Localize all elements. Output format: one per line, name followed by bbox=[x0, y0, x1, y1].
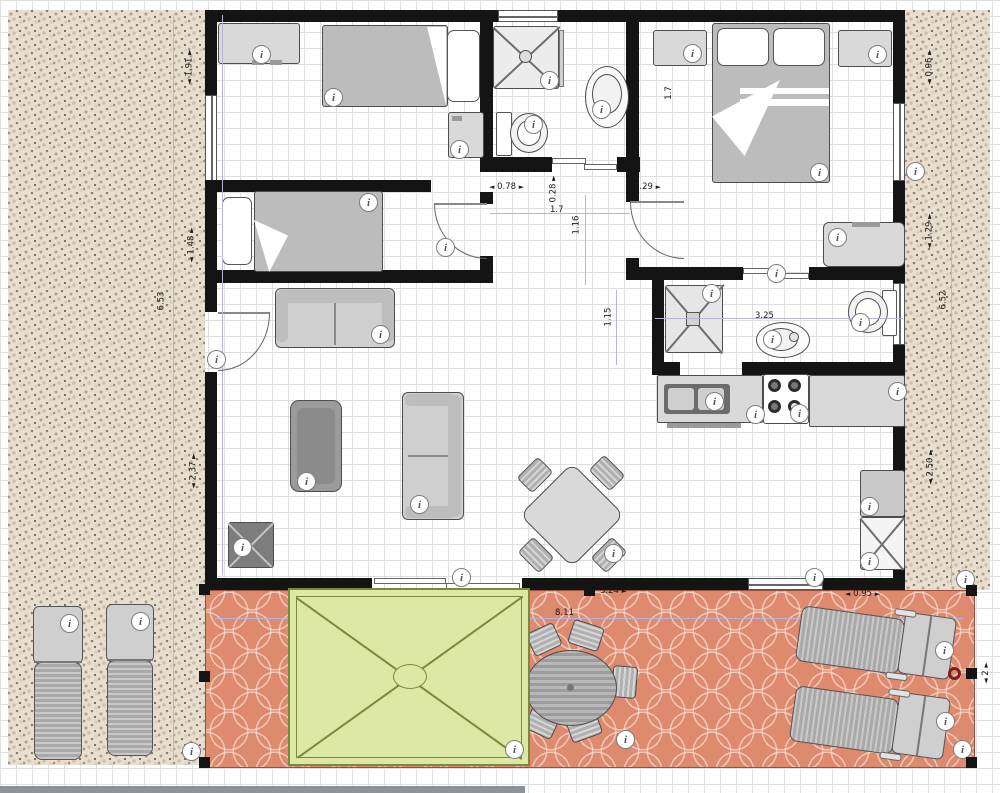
dimension-hall-door-width: ◄ 0.78 ► bbox=[489, 182, 524, 192]
sun-lounger[interactable] bbox=[30, 606, 86, 758]
door-arc[interactable] bbox=[218, 313, 270, 371]
dimension-hall-width: 1.7 bbox=[550, 205, 564, 215]
info-icon[interactable]: i bbox=[851, 313, 870, 332]
selection-handle[interactable] bbox=[584, 585, 595, 596]
selection-handle[interactable] bbox=[966, 585, 977, 596]
info-icon[interactable]: i bbox=[505, 740, 524, 759]
window[interactable] bbox=[498, 10, 558, 22]
sink-basin bbox=[668, 388, 694, 410]
pillow bbox=[773, 28, 825, 66]
guide-line bbox=[616, 290, 617, 365]
selection-handle[interactable] bbox=[199, 671, 210, 682]
info-icon[interactable]: i bbox=[524, 115, 543, 134]
dimension-left-top: ◄ 1.91 ► bbox=[185, 49, 195, 84]
dimension-hall-nook: 0.28 ► bbox=[549, 175, 559, 202]
window[interactable] bbox=[205, 95, 217, 187]
sofa-back bbox=[448, 395, 461, 517]
dimension-right-top: ◄ 0.96 ► bbox=[925, 49, 935, 84]
wall-segment bbox=[652, 362, 680, 375]
dimension-patio-width: 8.11 bbox=[555, 608, 574, 618]
desk-detail bbox=[270, 60, 282, 65]
info-icon[interactable]: i bbox=[233, 538, 252, 557]
info-icon[interactable]: i bbox=[324, 88, 343, 107]
info-icon[interactable]: i bbox=[767, 264, 786, 283]
info-icon[interactable]: i bbox=[702, 284, 721, 303]
info-icon[interactable]: i bbox=[592, 100, 611, 119]
gazebo[interactable] bbox=[288, 588, 530, 766]
sliding-door[interactable] bbox=[552, 157, 617, 172]
info-icon[interactable]: i bbox=[207, 350, 226, 369]
info-icon[interactable]: i bbox=[868, 45, 887, 64]
info-icon[interactable]: i bbox=[683, 44, 702, 63]
info-icon[interactable]: i bbox=[410, 495, 429, 514]
sofa-seam bbox=[408, 455, 448, 457]
info-icon[interactable]: i bbox=[763, 330, 782, 349]
wall-segment bbox=[205, 10, 217, 95]
info-icon[interactable]: i bbox=[131, 612, 150, 631]
wall-segment bbox=[652, 280, 664, 375]
selection-handle[interactable] bbox=[966, 757, 977, 768]
washer-detail bbox=[452, 116, 462, 121]
info-icon[interactable]: i bbox=[705, 392, 724, 411]
counter-edge bbox=[667, 423, 741, 428]
info-icon[interactable]: i bbox=[888, 382, 907, 401]
info-icon[interactable]: i bbox=[371, 325, 390, 344]
bottom-texture-strip bbox=[0, 786, 525, 793]
door-arc[interactable] bbox=[630, 202, 684, 259]
info-icon[interactable]: i bbox=[297, 472, 316, 491]
dimension-patio-right: ◄ 0.95 ► bbox=[845, 589, 880, 599]
info-icon[interactable]: i bbox=[452, 568, 471, 587]
dimension-right-lower: ◄ 2.50 ► bbox=[926, 449, 936, 484]
wall-segment bbox=[809, 267, 905, 280]
dresser-detail bbox=[852, 222, 880, 227]
info-icon[interactable]: i bbox=[436, 238, 455, 257]
info-icon[interactable]: i bbox=[936, 712, 955, 731]
shower-drain bbox=[519, 50, 532, 63]
guide-line bbox=[222, 15, 223, 575]
rotation-handle[interactable] bbox=[948, 667, 961, 680]
sofa-arm bbox=[405, 394, 455, 406]
guide-line bbox=[585, 195, 586, 285]
window[interactable] bbox=[893, 103, 905, 181]
pillow bbox=[717, 28, 769, 66]
sink-faucet bbox=[789, 332, 799, 342]
floor-plan-canvas: i i i i i i i i i i i i i i i i i i i i … bbox=[0, 0, 1000, 793]
dimension-bath2-width: 3.25 bbox=[755, 311, 774, 321]
bed-sheet-stripe bbox=[740, 88, 829, 94]
sun-lounger[interactable] bbox=[103, 604, 157, 754]
dimension-patio-height: ◄ 2 ► bbox=[981, 662, 991, 684]
shower-door bbox=[559, 30, 564, 87]
info-icon[interactable]: i bbox=[450, 140, 469, 159]
info-icon[interactable]: i bbox=[604, 544, 623, 563]
dimension-left-lower: ◄ 2.37 ► bbox=[189, 453, 199, 488]
info-icon[interactable]: i bbox=[828, 228, 847, 247]
dimension-hall-depth: 1.16 bbox=[571, 216, 581, 235]
selection-handle[interactable] bbox=[199, 757, 210, 768]
dimension-bath2-entry: 1.15 bbox=[603, 308, 613, 327]
guide-line bbox=[173, 15, 174, 760]
wall-segment bbox=[522, 578, 748, 590]
selection-handle[interactable] bbox=[199, 584, 210, 595]
info-icon[interactable]: i bbox=[540, 71, 559, 90]
dimension-left-wall: 6.53 bbox=[156, 292, 166, 311]
info-icon[interactable]: i bbox=[60, 614, 79, 633]
wall-segment bbox=[205, 187, 217, 312]
wall-segment bbox=[205, 10, 498, 22]
info-icon[interactable]: i bbox=[810, 163, 829, 182]
pillow bbox=[447, 30, 480, 102]
info-icon[interactable]: i bbox=[790, 404, 809, 423]
wall-segment bbox=[205, 372, 217, 590]
dimension-master-side: 1.7 bbox=[664, 86, 674, 100]
gazebo-center bbox=[393, 664, 427, 689]
dimension-hall-right: 0.29 ► bbox=[634, 182, 661, 192]
info-icon[interactable]: i bbox=[906, 162, 925, 181]
info-icon[interactable]: i bbox=[252, 45, 271, 64]
info-icon[interactable]: i bbox=[359, 193, 378, 212]
shower-center bbox=[686, 312, 700, 326]
selection-handle[interactable] bbox=[966, 668, 977, 679]
wall-segment bbox=[558, 10, 905, 22]
pillow bbox=[222, 197, 252, 265]
wall-segment bbox=[626, 267, 743, 280]
outdoor-table-center bbox=[567, 684, 574, 691]
info-icon[interactable]: i bbox=[860, 497, 879, 516]
info-icon[interactable]: i bbox=[860, 552, 879, 571]
dimension-right-wall: 6.52 bbox=[938, 291, 948, 310]
info-icon[interactable]: i bbox=[805, 568, 824, 587]
sofa-seam bbox=[334, 303, 336, 345]
sofa-arm bbox=[276, 292, 288, 342]
info-icon[interactable]: i bbox=[746, 405, 765, 424]
dimension-patio-top: 3.24 ► bbox=[600, 586, 627, 596]
dimension-left-mid: ◄ 1.48 ► bbox=[187, 227, 197, 262]
info-icon[interactable]: i bbox=[616, 730, 635, 749]
dimension-right-mid: ◄ 1.29 ► bbox=[925, 213, 935, 248]
info-icon[interactable]: i bbox=[935, 641, 954, 660]
sofa-back bbox=[278, 290, 392, 303]
kitchen-counter[interactable] bbox=[809, 375, 905, 427]
guide-line bbox=[951, 15, 952, 585]
wall-segment bbox=[893, 10, 905, 103]
wall-segment bbox=[480, 157, 552, 172]
